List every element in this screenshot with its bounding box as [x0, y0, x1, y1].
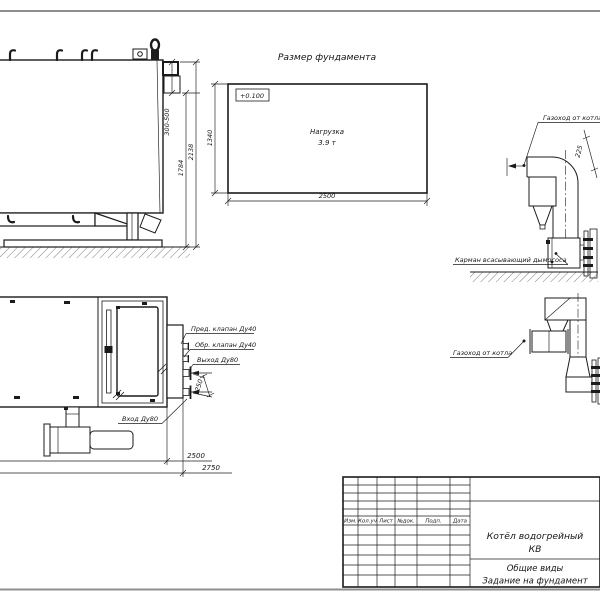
label-check-valve-group: Обр. клапан Ду40 [184, 341, 256, 357]
doc-title-line1: Котёл водогрейный [487, 531, 583, 542]
boiler-body-side [0, 60, 163, 213]
dim-225: 225 [574, 130, 598, 178]
doc-subtitle-line1: Общие виды [507, 564, 564, 574]
load-value: 3.9 т [318, 139, 336, 147]
dim-flue-offset: 300-500 [163, 108, 171, 135]
col-data: Дата [452, 519, 467, 525]
boiler-body-plan [0, 297, 167, 407]
foundation-dim-width: 1340 [206, 81, 228, 196]
flue-label-top: Газоход от котла [543, 114, 600, 122]
check-valve-stub [183, 355, 189, 363]
flue-label-bottom: Газоход от котла [453, 349, 512, 357]
flue-collar [163, 62, 180, 93]
svg-text:2500: 2500 [319, 192, 336, 200]
dim-total-height: 2138 [187, 144, 195, 161]
label-check-valve: Обр. клапан Ду40 [195, 341, 256, 349]
svg-text:250: 250 [193, 378, 204, 392]
ground-hatch-side [0, 247, 190, 258]
dim-250: 250 [193, 374, 214, 397]
pocket-label: Карман всасывающий дымососа [455, 256, 567, 264]
burner-assembly [44, 407, 133, 456]
svg-text:1340: 1340 [206, 130, 214, 147]
col-ndok: №док. [396, 519, 415, 525]
dim-total-length: 2750 [202, 464, 220, 472]
safety-valve-stub [183, 343, 189, 351]
col-koluch: Кол.уч [358, 519, 377, 525]
title-block: Изм. Кол.уч Лист №док. Подп. Дата Котёл … [343, 477, 600, 587]
cyclone-collector [529, 177, 556, 229]
plan-flange-box [566, 377, 592, 392]
plan-transition-lower [566, 357, 590, 377]
smoke-box [167, 325, 183, 398]
base-frame [0, 213, 162, 247]
col-izm: Изм. [344, 519, 357, 525]
doc-subtitle-line2: Задание на фундамент [482, 577, 588, 587]
foundation-dim-length: 2500 [225, 192, 430, 206]
dim-body-length: 2500 [187, 452, 205, 460]
leader-arrowhead [508, 164, 516, 169]
col-podp: Подп. [425, 519, 441, 525]
label-outlet: Выход Ду80 [197, 356, 238, 364]
lifting-eye [133, 40, 159, 61]
label-safety-valve: Пред. клапан Ду40 [191, 325, 256, 333]
flue-detail-elevation: Газоход от котла [453, 114, 600, 282]
drawing-sheet: 300-500 1784 2138 Размер фундамента +0.1… [0, 0, 600, 600]
lifting-hooks-top [10, 50, 97, 60]
flue-label-bottom-group: Газоход от котла [450, 340, 526, 358]
plan-fan-flange [591, 358, 600, 404]
boiler-top-view: 250 Пред. клапан Ду40 Обр. клапан Ду40 В… [0, 297, 256, 477]
flue-detail-plan: Газоход от котла [450, 293, 600, 404]
label-inlet: Вход Ду80 [122, 415, 158, 423]
foundation-pad [4, 240, 162, 247]
col-list: Лист [378, 519, 394, 525]
elevation-mark: +0.100 [240, 92, 264, 100]
dim-body-height: 1784 [177, 160, 185, 177]
boiler-side-view: 300-500 1784 2138 [0, 40, 200, 259]
plan-transition-upper [547, 320, 568, 331]
foundation-plan: Размер фундамента +0.100 Нагрузка 3.9 т … [206, 52, 430, 206]
label-outlet-group: Выход Ду80 [189, 356, 240, 371]
outlet-nozzle [183, 367, 212, 381]
ground-hatch-right [470, 272, 598, 282]
drawing-canvas: 300-500 1784 2138 Размер фундамента +0.1… [0, 0, 600, 600]
plan-flanged-duct [530, 329, 568, 354]
load-label: Нагрузка [310, 128, 344, 136]
foundation-title: Размер фундамента [278, 52, 377, 63]
svg-text:225: 225 [574, 144, 585, 158]
fan-inlet-flange [583, 229, 597, 278]
doc-title-line2: КВ [529, 544, 542, 555]
